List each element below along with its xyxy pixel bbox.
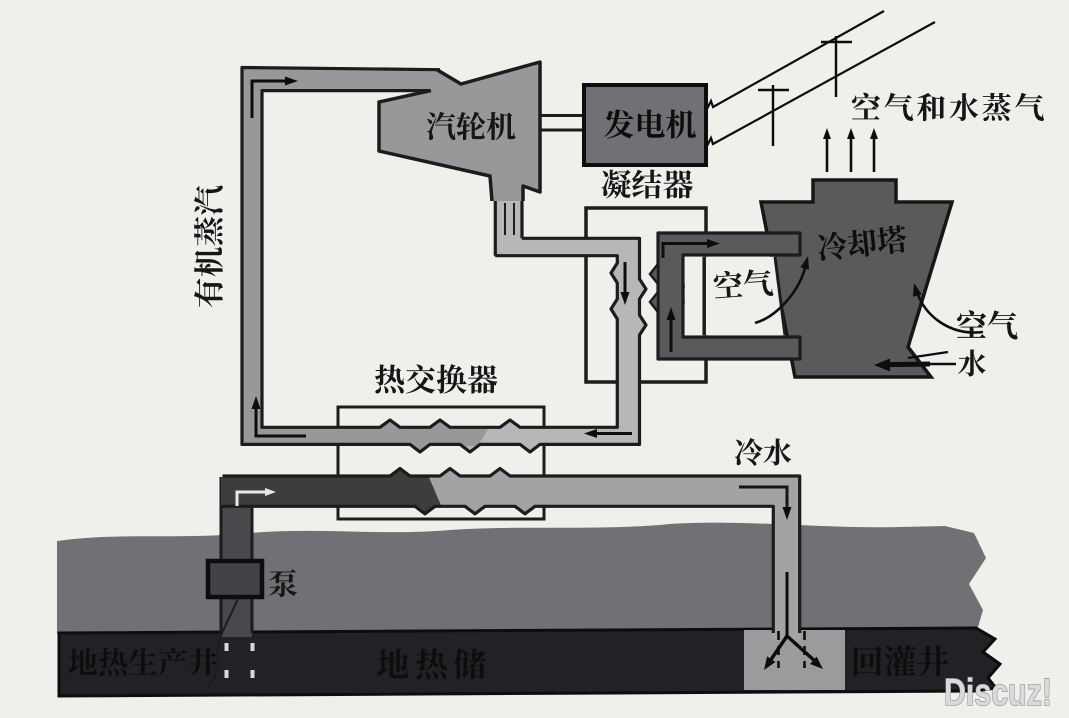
- svg-text:Discuz!: Discuz!: [944, 672, 1052, 714]
